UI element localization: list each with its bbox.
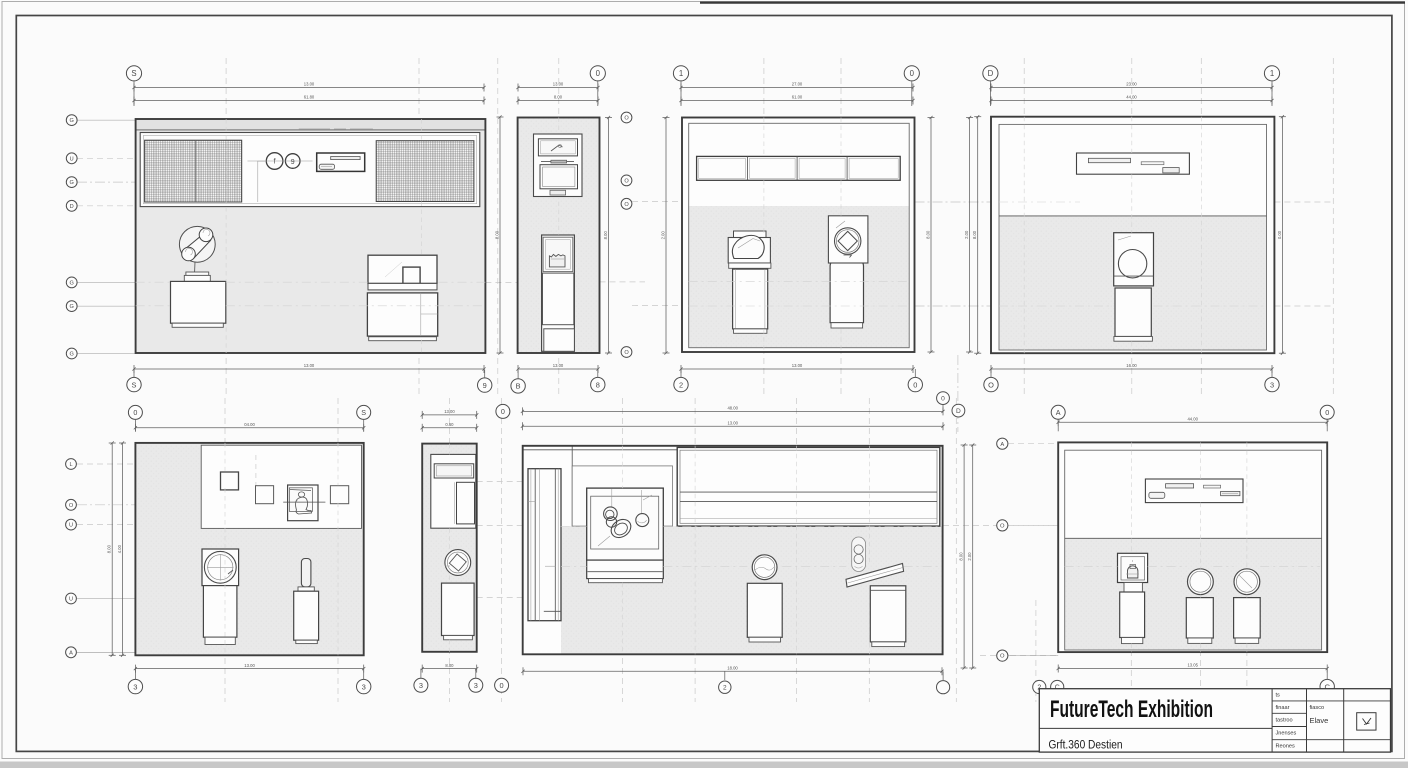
svg-text:O: O [69, 503, 74, 509]
svg-text:13.00: 13.00 [304, 363, 315, 368]
svg-text:3: 3 [1270, 380, 1274, 389]
svg-text:16.00: 16.00 [1126, 363, 1137, 368]
svg-text:G: G [70, 118, 74, 124]
svg-text:4.00: 4.00 [117, 544, 122, 553]
svg-text:3: 3 [133, 682, 137, 691]
svg-text:G: G [70, 304, 74, 310]
svg-text:FutureTech Exhibition: FutureTech Exhibition [1050, 696, 1213, 723]
svg-text:13.00: 13.00 [304, 82, 315, 87]
svg-text:U: U [70, 156, 74, 162]
svg-text:13.00: 13.00 [553, 82, 564, 87]
svg-text:48.00: 48.00 [727, 406, 738, 411]
svg-text:04.00: 04.00 [244, 422, 255, 427]
svg-text:8.00: 8.00 [107, 544, 112, 553]
svg-text:23.00: 23.00 [1126, 82, 1137, 87]
svg-text:61.80: 61.80 [304, 95, 315, 100]
svg-text:O: O [624, 178, 629, 184]
svg-text:61.00: 61.00 [792, 95, 803, 100]
svg-text:O: O [624, 202, 629, 208]
svg-text:D: D [988, 69, 994, 78]
svg-text:0: 0 [913, 380, 917, 389]
svg-text:0: 0 [501, 407, 505, 416]
svg-text:f: f [274, 159, 276, 166]
svg-text:L: L [69, 462, 72, 468]
svg-text:O: O [988, 380, 994, 389]
svg-text:2.00: 2.00 [967, 552, 972, 561]
svg-text:13.00: 13.00 [444, 409, 455, 414]
svg-text:13.00: 13.00 [553, 363, 564, 368]
svg-text:8.00: 8.00 [554, 95, 563, 100]
svg-text:8.00: 8.00 [495, 230, 500, 239]
svg-text:Jnenses: Jnenses [1276, 731, 1297, 737]
svg-text:B: B [516, 382, 521, 391]
svg-text:0: 0 [596, 69, 601, 78]
svg-text:A: A [69, 650, 73, 656]
svg-text:13.00: 13.00 [727, 420, 738, 425]
svg-text:2: 2 [679, 380, 683, 389]
svg-text:finaar: finaar [1276, 705, 1290, 711]
svg-text:fiasco: fiasco [1310, 705, 1325, 711]
svg-text:8.00: 8.00 [445, 663, 454, 668]
svg-text:0: 0 [910, 69, 915, 78]
svg-text:2: 2 [723, 685, 727, 692]
svg-text:44.00: 44.00 [1126, 95, 1137, 100]
svg-text:0.60: 0.60 [445, 422, 454, 427]
svg-text:S: S [361, 408, 366, 417]
svg-text:8: 8 [596, 380, 600, 389]
svg-text:D: D [70, 204, 74, 210]
svg-text:D: D [956, 408, 961, 415]
svg-text:44.00: 44.00 [1187, 416, 1198, 421]
svg-text:3: 3 [474, 681, 478, 690]
svg-text:Reones: Reones [1276, 744, 1295, 750]
svg-text:G: G [70, 352, 74, 358]
svg-text:9: 9 [483, 381, 487, 390]
svg-text:13.05: 13.05 [1187, 663, 1198, 668]
svg-text:S: S [132, 380, 137, 389]
svg-text:tastroo: tastroo [1276, 718, 1293, 724]
svg-text:3: 3 [419, 681, 423, 690]
svg-text:27.00: 27.00 [792, 82, 803, 87]
svg-text:A: A [1000, 442, 1004, 448]
svg-text:0: 0 [133, 408, 137, 417]
svg-text:O: O [1000, 654, 1005, 660]
svg-text:O: O [624, 350, 629, 356]
svg-text:0: 0 [1325, 408, 1329, 417]
svg-text:S: S [131, 69, 136, 78]
svg-text:8.00: 8.00 [959, 552, 964, 561]
svg-text:2.00: 2.00 [661, 231, 666, 240]
svg-text:G: G [70, 280, 74, 286]
svg-text:A: A [1056, 408, 1061, 417]
svg-text:U: U [69, 523, 73, 529]
svg-text:0.00: 0.00 [1277, 230, 1282, 239]
svg-text:18.00: 18.00 [727, 666, 738, 671]
svg-text:13.00: 13.00 [792, 363, 803, 368]
svg-text:G: G [70, 180, 74, 186]
svg-text:Grft.360 Destien: Grft.360 Destien [1049, 740, 1123, 752]
svg-text:U: U [69, 597, 73, 603]
svg-text:ts: ts [1276, 693, 1281, 699]
svg-text:0: 0 [500, 681, 504, 690]
svg-text:3: 3 [362, 682, 366, 691]
svg-text:O: O [1000, 523, 1005, 529]
svg-text:8.00: 8.00 [926, 230, 931, 239]
svg-text:8.00: 8.00 [603, 231, 608, 240]
svg-text:Elave: Elave [1310, 716, 1329, 725]
svg-text:2.00: 2.00 [964, 230, 969, 239]
svg-text:O: O [624, 116, 629, 122]
svg-text:13.00: 13.00 [244, 663, 255, 668]
svg-text:8.00: 8.00 [972, 230, 977, 239]
svg-text:9: 9 [291, 159, 295, 166]
svg-text:0: 0 [941, 395, 945, 402]
svg-text:1: 1 [1270, 69, 1274, 78]
svg-text:1: 1 [679, 69, 683, 78]
